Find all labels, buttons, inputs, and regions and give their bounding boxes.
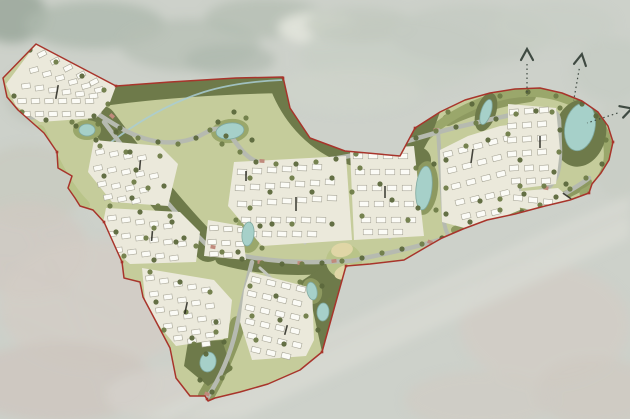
tree-icon <box>189 335 194 340</box>
tree-icon <box>219 141 224 146</box>
tree-icon <box>299 261 304 266</box>
building-footprint <box>177 241 186 247</box>
tree-icon <box>53 59 58 64</box>
building-footprint <box>524 108 533 114</box>
tree-icon <box>113 129 118 134</box>
tree-icon <box>105 101 110 106</box>
building-footprint <box>85 98 94 104</box>
building-footprint <box>312 164 322 170</box>
tree-icon <box>247 283 252 288</box>
tree-icon <box>231 109 236 114</box>
building-footprint <box>310 180 320 186</box>
tree-icon <box>549 109 554 114</box>
tree-icon <box>517 157 522 162</box>
tree-icon <box>405 217 410 222</box>
tree-icon <box>497 196 502 201</box>
building-footprint <box>208 239 217 245</box>
building-footprint <box>539 107 548 113</box>
tree-icon <box>147 269 152 274</box>
tree-icon <box>297 279 302 284</box>
tree-icon <box>277 317 282 322</box>
building-footprint <box>393 229 403 235</box>
tree-icon <box>73 123 78 128</box>
boundary-vertex-dot <box>612 141 615 144</box>
tree-icon <box>213 329 218 334</box>
tree-icon <box>553 194 558 199</box>
building-footprint <box>511 178 520 184</box>
tree-icon <box>303 313 308 318</box>
building-footprint <box>163 239 172 245</box>
tree-icon <box>101 87 106 92</box>
building-footprint <box>280 182 290 188</box>
tree-icon <box>551 169 556 174</box>
building-footprint <box>292 231 302 237</box>
building-footprint <box>524 165 533 171</box>
building-footprint <box>177 297 186 303</box>
tree-icon <box>273 161 278 166</box>
tree-icon <box>289 221 294 226</box>
tree-icon <box>556 149 561 154</box>
tree-icon <box>243 115 248 120</box>
tree-icon <box>505 131 510 136</box>
building-footprint <box>541 178 550 184</box>
tree-icon <box>219 375 224 380</box>
building-footprint <box>163 294 172 300</box>
illegible-map-label <box>295 197 297 211</box>
tree-icon <box>177 279 182 284</box>
tree-icon <box>333 156 338 161</box>
building-footprint <box>135 219 144 225</box>
building-footprint <box>370 169 380 175</box>
building-footprint <box>21 83 30 89</box>
tree-icon <box>135 135 140 140</box>
housing-parcel-west-mid-east <box>204 220 246 260</box>
building-footprint <box>312 196 322 202</box>
tree-icon <box>533 108 538 113</box>
tree-icon <box>433 128 438 133</box>
tree-icon <box>167 213 172 218</box>
road-crossing <box>331 259 336 263</box>
building-footprint <box>513 195 523 201</box>
building-footprint <box>169 255 178 261</box>
tree-icon <box>247 175 252 180</box>
tree-icon <box>293 161 298 166</box>
building-footprint <box>145 275 154 281</box>
building-footprint <box>400 169 410 175</box>
tree-icon <box>329 221 334 226</box>
masterplan-svg <box>0 0 630 419</box>
building-footprint <box>201 341 210 347</box>
tree-icon <box>101 173 106 178</box>
tree-icon <box>169 219 174 224</box>
building-footprint <box>121 217 130 223</box>
building-footprint <box>252 168 262 174</box>
tree-icon <box>133 167 138 172</box>
building-footprint <box>197 316 206 322</box>
tree-icon <box>567 186 572 191</box>
building-footprint <box>402 185 412 191</box>
building-footprint <box>235 185 245 191</box>
illegible-map-label <box>539 136 541 148</box>
tree-icon <box>143 235 148 240</box>
tree-icon <box>463 143 468 148</box>
tree-icon <box>399 246 404 251</box>
building-footprint <box>62 111 71 117</box>
tree-icon <box>121 253 126 258</box>
tree-icon <box>267 189 272 194</box>
tree-icon <box>443 157 448 162</box>
tree-icon <box>541 183 546 188</box>
building-footprint <box>159 278 168 284</box>
tree-icon <box>319 260 324 265</box>
tree-icon <box>557 105 562 110</box>
tree-icon <box>599 161 604 166</box>
tree-icon <box>603 137 608 142</box>
building-footprint <box>31 98 40 104</box>
tree-icon <box>469 101 474 106</box>
tree-icon <box>349 189 354 194</box>
tree-icon <box>257 223 262 228</box>
tree-icon <box>145 185 150 190</box>
tree-icon <box>249 313 254 318</box>
tree-icon <box>93 137 98 142</box>
masterplan-image <box>0 0 630 419</box>
building-footprint <box>62 89 71 95</box>
tree-icon <box>433 207 438 212</box>
tree-icon <box>219 249 224 254</box>
tree-icon <box>239 256 244 261</box>
building-footprint <box>376 217 386 223</box>
building-footprint <box>121 233 130 239</box>
tree-icon <box>155 139 160 144</box>
housing-parcel-central-east <box>350 146 424 240</box>
building-footprint <box>378 229 388 235</box>
tree-icon <box>151 257 156 262</box>
building-footprint <box>307 231 317 237</box>
building-footprint <box>522 150 531 156</box>
tree-icon <box>11 93 16 98</box>
tree-icon <box>357 165 362 170</box>
boundary-vertex-dot <box>588 192 591 195</box>
building-footprint <box>363 229 373 235</box>
tree-icon <box>235 249 240 254</box>
tree-icon <box>389 197 394 202</box>
boundary-vertex-dot <box>321 351 324 354</box>
tree-icon <box>207 127 212 132</box>
tree-icon <box>113 229 118 234</box>
tree-icon <box>281 341 286 346</box>
tree-icon <box>485 137 490 142</box>
building-footprint <box>177 326 186 332</box>
tree-icon <box>127 149 132 154</box>
building-footprint <box>72 98 81 104</box>
tree-icon <box>161 183 166 188</box>
building-footprint <box>265 183 275 189</box>
building-footprint <box>205 303 214 309</box>
building-footprint <box>237 201 247 207</box>
building-footprint <box>35 111 44 117</box>
tree-icon <box>513 111 518 116</box>
tree-icon <box>69 119 74 124</box>
tree-icon <box>173 239 178 244</box>
building-footprint <box>256 217 266 223</box>
boundary-vertex-dot <box>282 77 285 80</box>
road-crossing <box>259 159 264 163</box>
tree-icon <box>553 93 558 98</box>
tree-icon <box>221 339 226 344</box>
tree-icon <box>593 113 598 118</box>
tree-icon <box>191 341 196 346</box>
building-footprint <box>205 332 214 338</box>
tree-icon <box>413 135 418 140</box>
building-footprint <box>155 307 164 313</box>
tree-icon <box>517 183 522 188</box>
building-footprint <box>522 122 531 128</box>
tree-icon <box>157 153 162 158</box>
building-footprint <box>391 217 401 223</box>
tree-icon <box>259 260 264 265</box>
tree-icon <box>289 175 294 180</box>
tree-icon <box>557 127 562 132</box>
tree-icon <box>521 191 526 196</box>
tree-icon <box>233 217 238 222</box>
building-footprint <box>385 169 395 175</box>
building-footprint <box>526 178 535 184</box>
tree-icon <box>193 243 198 248</box>
building-footprint <box>522 136 531 142</box>
tree-icon <box>131 179 136 184</box>
tree-icon <box>129 195 134 200</box>
tree-icon <box>329 175 334 180</box>
building-footprint <box>141 251 150 257</box>
building-footprint <box>210 225 219 231</box>
tree-icon <box>209 389 214 394</box>
building-footprint <box>537 121 546 127</box>
tree-icon <box>181 235 186 240</box>
building-footprint <box>327 195 337 201</box>
tree-icon <box>269 221 274 226</box>
tree-icon <box>309 189 314 194</box>
building-footprint <box>267 167 277 173</box>
building-footprint <box>149 237 158 243</box>
tree-icon <box>247 205 252 210</box>
building-footprint <box>295 181 305 187</box>
tree-icon <box>79 73 84 78</box>
tree-icon <box>443 211 448 216</box>
building-footprint <box>76 111 85 117</box>
tree-icon <box>259 245 264 250</box>
tree-icon <box>215 119 220 124</box>
tree-icon <box>319 283 324 288</box>
parcel-base <box>508 104 560 190</box>
tree-icon <box>91 113 96 118</box>
tree-icon <box>43 117 48 122</box>
tree-icon <box>97 143 102 148</box>
tree-icon <box>95 121 100 126</box>
tree-icon <box>359 255 364 260</box>
building-footprint <box>357 185 367 191</box>
tree-icon <box>175 141 180 146</box>
tree-icon <box>477 198 482 203</box>
tree-icon <box>327 297 332 302</box>
tree-icon <box>193 135 198 140</box>
tree-icon <box>237 149 242 154</box>
tree-icon <box>203 351 208 356</box>
boundary-vertex-dot <box>56 151 59 154</box>
tree-icon <box>359 213 364 218</box>
boundary-vertex-dot <box>115 85 118 88</box>
building-footprint <box>75 91 84 97</box>
tree-icon <box>313 159 318 164</box>
building-footprint <box>191 300 200 306</box>
illegible-map-label <box>245 171 247 181</box>
tree-icon <box>377 181 382 186</box>
housing-parcel-east-b <box>507 104 560 190</box>
building-footprint <box>297 197 307 203</box>
building-footprint <box>224 226 233 232</box>
building-footprint <box>18 98 27 104</box>
building-footprint <box>45 98 54 104</box>
tree-icon <box>339 258 344 263</box>
tree-icon <box>525 89 530 94</box>
building-footprint <box>58 98 67 104</box>
tree-icon <box>379 250 384 255</box>
building-footprint <box>149 291 158 297</box>
building-footprint <box>507 137 516 143</box>
building-footprint <box>537 149 546 155</box>
tree-icon <box>273 293 278 298</box>
tree-icon <box>151 225 156 230</box>
tree-icon <box>253 159 258 164</box>
building-footprint <box>135 235 144 241</box>
building-footprint <box>507 151 516 157</box>
boundary-vertex-dot <box>121 261 124 264</box>
tree-icon <box>445 109 450 114</box>
tree-icon <box>315 327 320 332</box>
tree-icon <box>453 124 458 129</box>
tree-icon <box>223 133 228 138</box>
building-footprint <box>359 201 369 207</box>
tree-icon <box>493 116 498 121</box>
tree-icon <box>279 261 284 266</box>
tree-icon <box>227 365 232 370</box>
tree-icon <box>249 137 254 142</box>
building-footprint <box>297 165 307 171</box>
tree-icon <box>443 185 448 190</box>
building-footprint <box>316 217 326 223</box>
tree-icon <box>431 161 436 166</box>
building-footprint <box>509 165 518 171</box>
boundary-vertex-dot <box>345 265 348 268</box>
tree-icon <box>413 165 418 170</box>
building-footprint <box>282 198 292 204</box>
tree-icon <box>155 203 160 208</box>
tree-icon <box>197 377 202 382</box>
building-footprint <box>187 284 196 290</box>
building-footprint <box>224 252 233 258</box>
boundary-vertex-dot <box>414 127 417 130</box>
building-footprint <box>374 201 384 207</box>
building-footprint <box>35 85 44 91</box>
building-footprint <box>282 166 292 172</box>
tree-icon <box>583 175 588 180</box>
building-footprint <box>169 310 178 316</box>
tree-icon <box>415 205 420 210</box>
building-footprint <box>250 184 260 190</box>
pond <box>79 124 95 136</box>
tree-icon <box>253 337 258 342</box>
tree-icon <box>107 203 112 208</box>
building-footprint <box>191 329 200 335</box>
building-footprint <box>49 111 58 117</box>
tree-icon <box>497 207 502 212</box>
building-footprint <box>528 197 538 203</box>
tree-icon <box>563 181 568 186</box>
building-footprint <box>107 215 116 221</box>
tree-icon <box>213 319 218 324</box>
building-footprint <box>222 240 231 246</box>
tree-icon <box>467 219 472 224</box>
boundary-vertex-dot <box>206 398 209 401</box>
building-footprint <box>267 199 277 205</box>
building-footprint <box>210 251 219 257</box>
building-footprint <box>387 185 397 191</box>
building-footprint <box>173 335 182 341</box>
tree-icon <box>419 241 424 246</box>
parcel-base <box>350 146 424 240</box>
tree-icon <box>137 209 142 214</box>
building-footprint <box>301 217 311 223</box>
tree-icon <box>497 93 502 98</box>
tree-icon <box>473 120 478 125</box>
tree-icon <box>117 125 122 130</box>
building-footprint <box>539 165 548 171</box>
tree-icon <box>207 289 212 294</box>
building-footprint <box>507 123 516 129</box>
building-footprint <box>537 135 546 141</box>
building-footprint <box>404 201 414 207</box>
building-footprint <box>127 249 136 255</box>
building-footprint <box>262 231 272 237</box>
boundary-vertex-dot <box>103 221 106 224</box>
illegible-map-label <box>384 186 386 198</box>
building-footprint <box>252 200 262 206</box>
building-footprint <box>155 253 164 259</box>
tree-icon <box>153 299 158 304</box>
building-footprint <box>277 231 287 237</box>
